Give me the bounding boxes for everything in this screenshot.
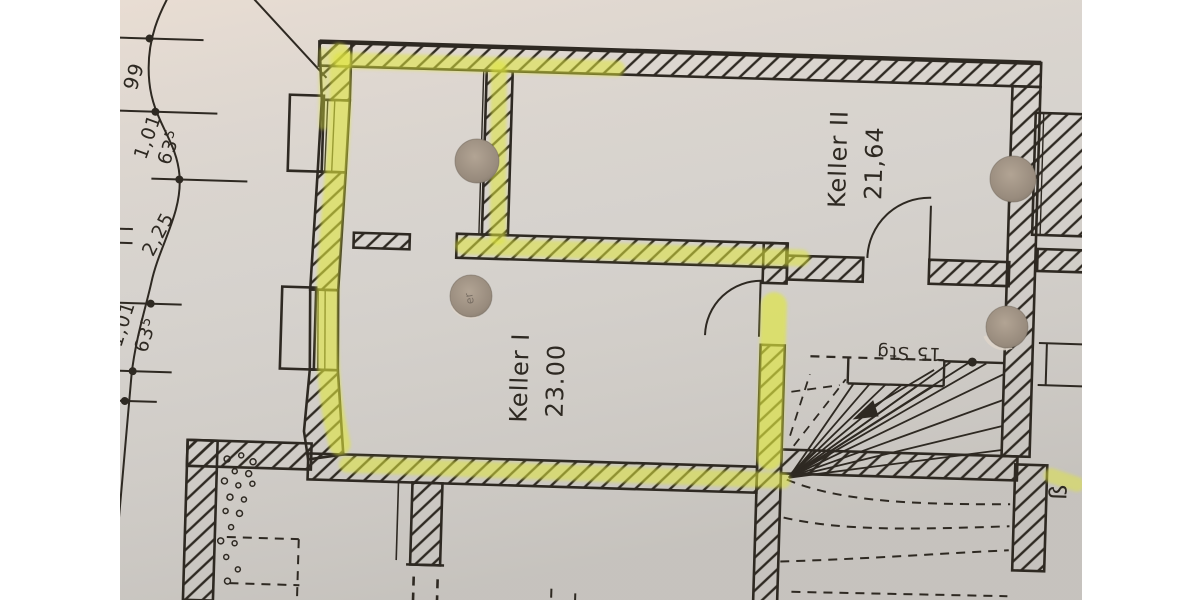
stair-hall-bottom-wall — [781, 449, 1018, 480]
right-pier — [1032, 113, 1082, 237]
edge-letter: ß — [1044, 483, 1072, 500]
floor-plan-photo: 99 1,01 635 2,25 1,01 635 — [120, 0, 1082, 600]
room-label-keller-1: Keller I — [504, 332, 535, 423]
paper-shading — [120, 0, 1082, 600]
hole-punch-2: er — [450, 275, 492, 317]
hole-punch-4 — [985, 306, 1028, 349]
room-label-keller-2: Keller II — [823, 110, 854, 209]
stair-count-label: 15 Stg — [876, 341, 941, 364]
hole-punch-1 — [455, 139, 499, 183]
hole-punch-3 — [990, 156, 1036, 202]
room-area-keller-1: 23.00 — [540, 343, 570, 418]
room-area-keller-2: 21,64 — [859, 126, 889, 201]
screenshot-canvas: 99 1,01 635 2,25 1,01 635 — [0, 0, 1200, 600]
